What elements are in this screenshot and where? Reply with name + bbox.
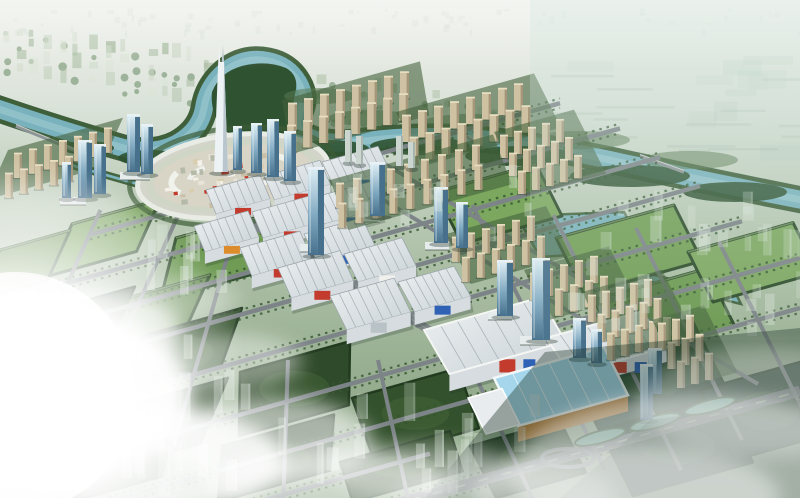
top-haze: [0, 0, 800, 70]
rendering-canvas: [0, 0, 800, 498]
aerial-masterplan-rendering: [0, 0, 800, 498]
